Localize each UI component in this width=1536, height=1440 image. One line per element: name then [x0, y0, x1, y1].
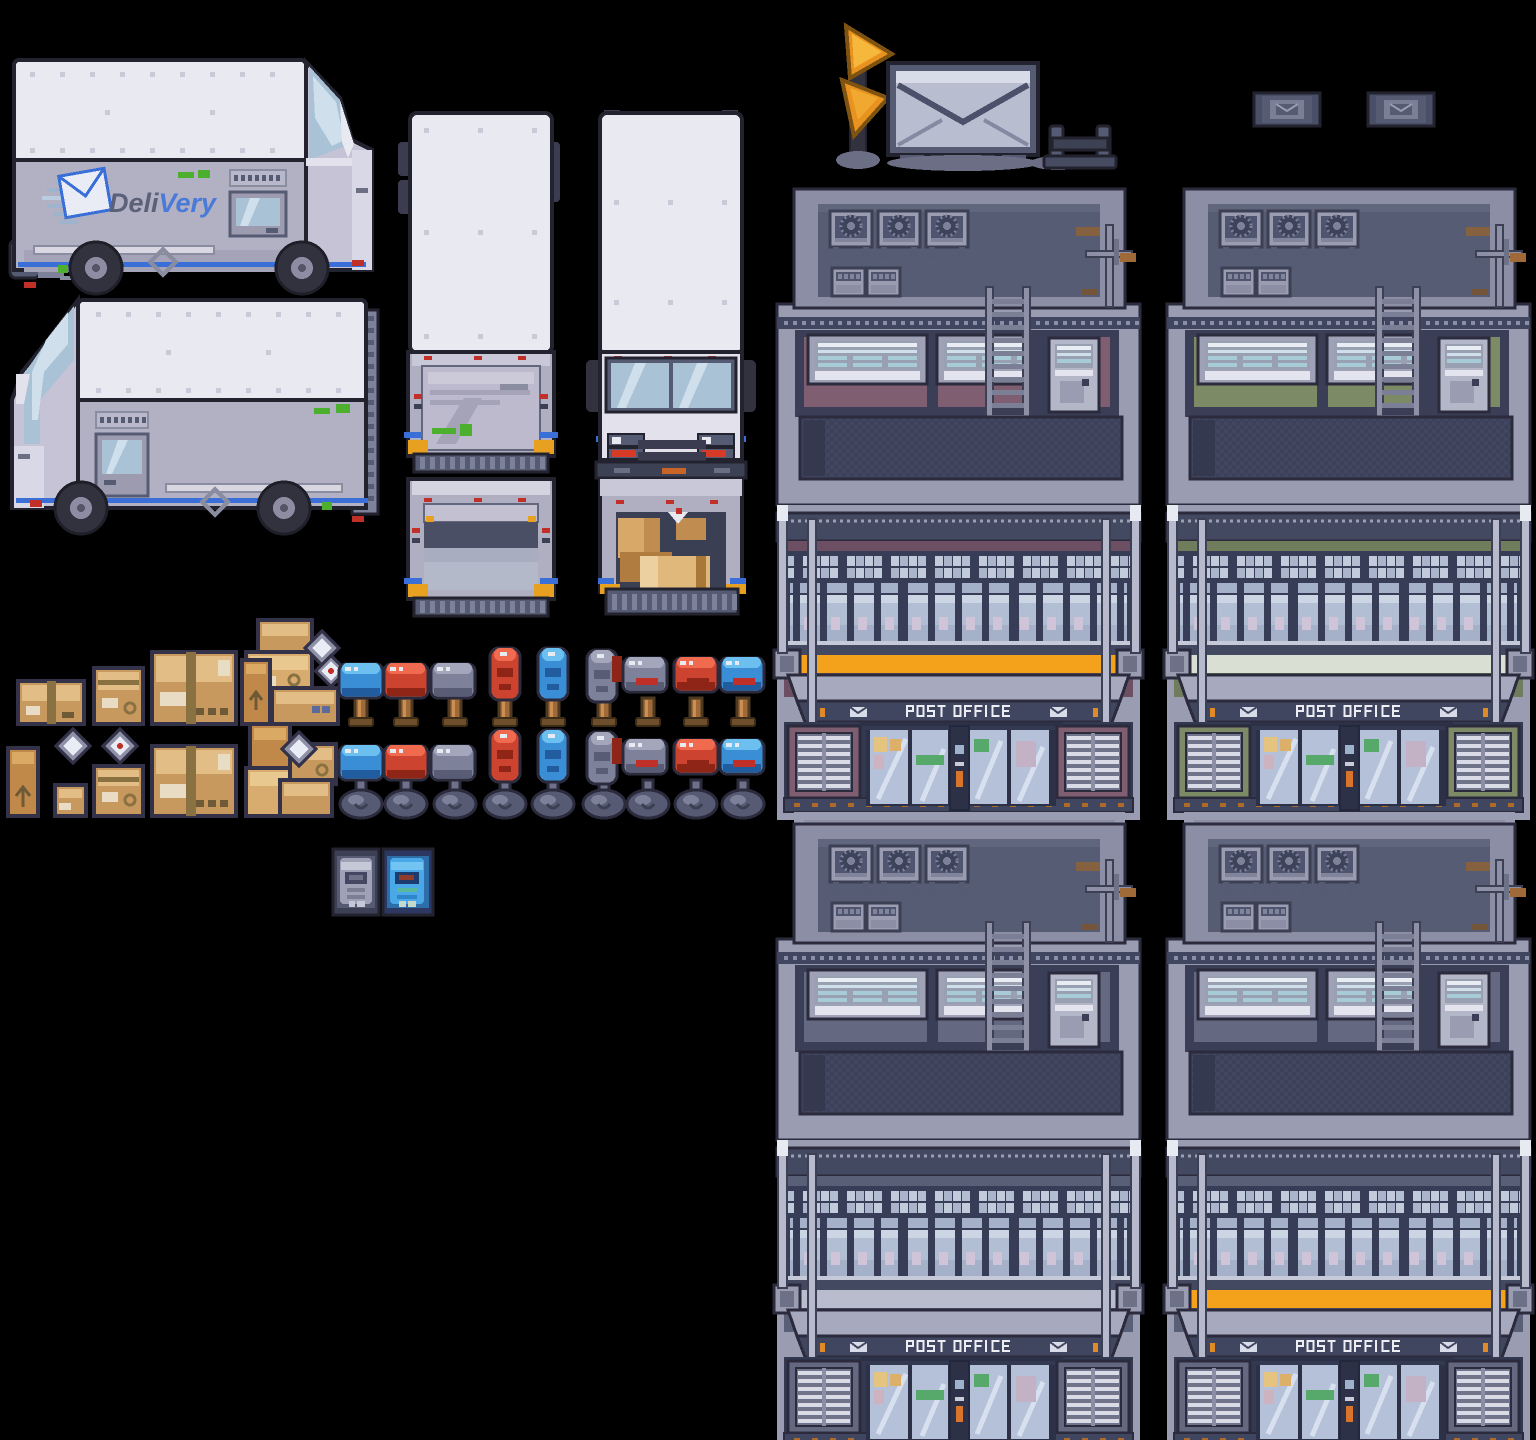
svg-text:DeliVery: DeliVery: [109, 188, 218, 218]
